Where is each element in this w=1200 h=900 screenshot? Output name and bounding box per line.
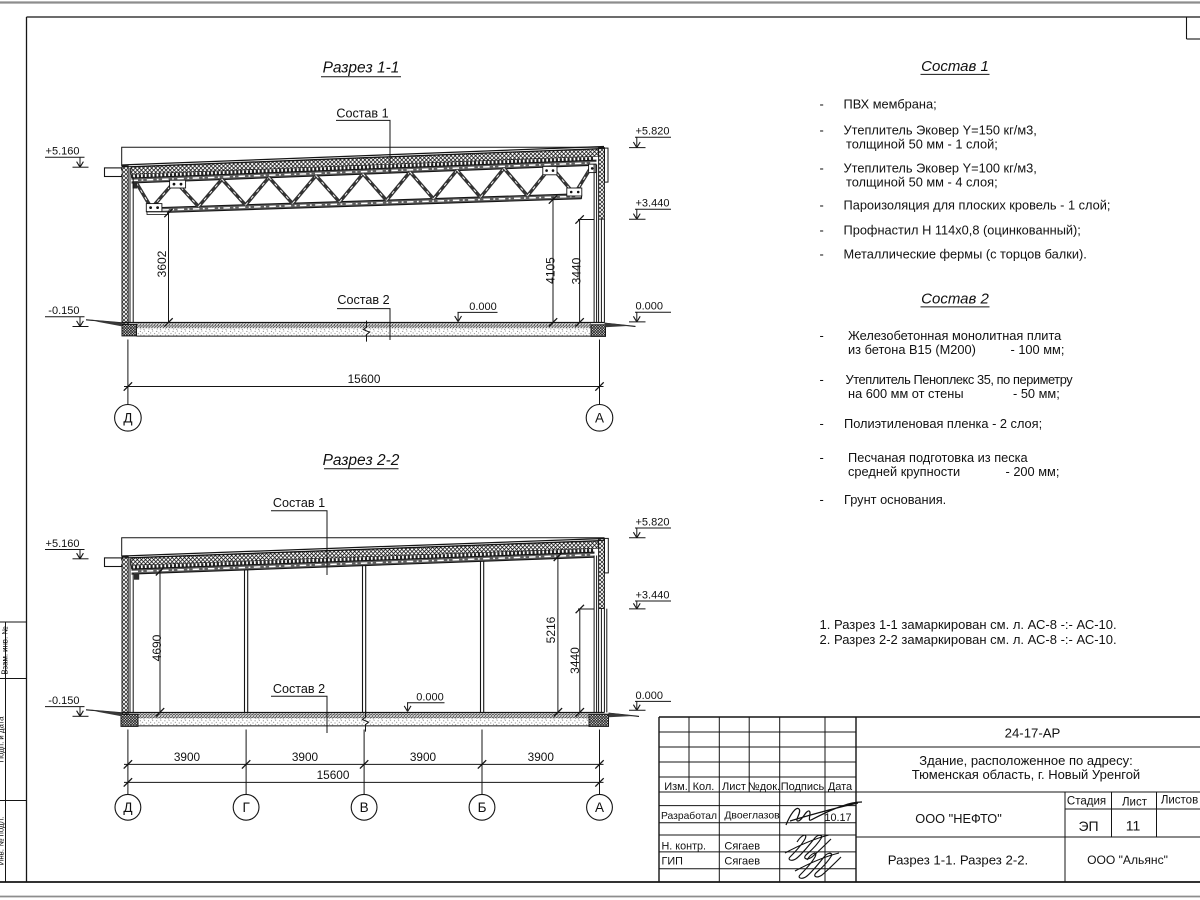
svg-text:-: - [820,197,824,212]
svg-text:Состав 1: Состав 1 [921,58,989,75]
svg-text:Песчаная подготовка из песка: Песчаная подготовка из песка [848,450,1029,465]
svg-text:Пароизоляция для плоских крове: Пароизоляция для плоских кровель - 1 сло… [844,197,1111,212]
svg-text:ПВХ мембрана;: ПВХ мембрана; [844,96,937,111]
svg-text:Здание, расположенное по адрес: Здание, расположенное по адресу: [919,753,1132,768]
svg-text:+5.820: +5.820 [636,126,670,138]
svg-text:В: В [360,800,369,815]
svg-text:ЭП: ЭП [1078,818,1098,834]
svg-text:-: - [820,222,824,237]
svg-text:11: 11 [1126,817,1141,833]
svg-text:толщиной 50 мм - 4 слоя;: толщиной 50 мм - 4 слоя; [846,174,998,189]
svg-text:Состав 1: Состав 1 [336,107,388,121]
svg-text:Листов: Листов [1161,795,1198,807]
svg-text:Разрез 2-2: Разрез 2-2 [323,452,400,469]
svg-text:Состав 2: Состав 2 [337,293,389,307]
svg-text:-0.150: -0.150 [48,305,79,317]
svg-text:+3.440: +3.440 [636,198,670,210]
svg-text:0.000: 0.000 [636,301,664,313]
svg-text:-: - [820,416,824,431]
svg-text:Металлические фермы (с торцов: Металлические фермы (с торцов балки). [844,246,1087,261]
svg-text:0.000: 0.000 [416,691,444,703]
svg-text:-: - [820,96,824,111]
svg-text:3602: 3602 [155,250,169,277]
svg-text:Стадия: Стадия [1067,796,1106,808]
svg-text:Состав 1: Состав 1 [273,496,325,510]
svg-text:- 50 мм;: - 50 мм; [1013,386,1060,401]
svg-text:-: - [820,328,824,343]
svg-text:3900: 3900 [410,750,437,764]
svg-text:Разрез 1-1: Разрез 1-1 [323,60,400,77]
svg-text:-: - [820,246,824,261]
svg-text:из бетона В15 (М200): из бетона В15 (М200) [848,342,976,357]
svg-text:+5.820: +5.820 [636,516,670,528]
svg-text:Инв. № подл.: Инв. № подл. [0,817,5,866]
svg-text:№док.: №док. [748,781,780,793]
svg-text:Д: Д [123,411,132,426]
svg-text:Состав 2: Состав 2 [921,291,989,308]
svg-text:1. Разрез 1-1 замаркирован см.: 1. Разрез 1-1 замаркирован см. л. АС-8 -… [820,617,1117,632]
svg-text:- 100 мм;: - 100 мм; [1011,342,1065,357]
svg-text:3900: 3900 [292,750,319,764]
svg-text:Сягаев: Сягаев [724,840,760,852]
svg-text:-0.150: -0.150 [48,695,79,707]
svg-text:Утеплитель Пеноплекс 35, по пе: Утеплитель Пеноплекс 35, по периметру [846,372,1074,387]
svg-text:Подпись: Подпись [781,781,825,793]
svg-text:ООО "НЕФТО": ООО "НЕФТО" [915,811,1002,826]
svg-text:-: - [820,450,824,465]
svg-text:Железобетонная монолитная пли: Железобетонная монолитная плита [848,328,1062,343]
svg-text:средней крупности: средней крупности [848,464,960,479]
svg-text:Двоеглазов: Двоеглазов [724,810,780,821]
svg-text:0.000: 0.000 [636,690,664,702]
svg-text:А: А [595,800,604,815]
svg-text:Профнастил Н 114х0,8 (оцинкова: Профнастил Н 114х0,8 (оцинкованный); [844,222,1081,237]
svg-text:+3.440: +3.440 [636,589,670,601]
svg-text:А: А [595,411,604,426]
svg-text:3440: 3440 [568,647,582,674]
svg-text:+5.160: +5.160 [46,146,80,158]
svg-text:Утеплитель Эковер Y=150 кг/м3,: Утеплитель Эковер Y=150 кг/м3, [844,122,1037,137]
svg-text:ООО "Альянс": ООО "Альянс" [1087,853,1168,867]
svg-text:-: - [820,492,824,507]
svg-text:4690: 4690 [150,634,164,661]
svg-text:на 600 мм от стены: на 600 мм от стены [848,386,964,401]
svg-text:4105: 4105 [544,257,558,284]
svg-text:Утеплитель Эковер Y=100 кг/м3,: Утеплитель Эковер Y=100 кг/м3, [844,160,1037,175]
svg-text:Разрез 1-1. Разрез 2-2.: Разрез 1-1. Разрез 2-2. [888,852,1028,867]
svg-text:Изм.: Изм. [664,781,688,793]
svg-text:5216: 5216 [544,616,558,643]
svg-text:Разработал: Разработал [661,810,717,822]
svg-text:Д: Д [123,800,132,815]
svg-text:3900: 3900 [174,750,201,764]
svg-text:Подп. и дата: Подп. и дата [0,716,5,763]
svg-text:Дата: Дата [828,781,853,793]
svg-text:Тюменская область, г. Новый Ур: Тюменская область, г. Новый Уренгой [912,767,1140,782]
svg-text:2. Разрез 2-2 замаркирован см.: 2. Разрез 2-2 замаркирован см. л. АС-8 -… [820,632,1117,647]
svg-text:Кол.: Кол. [693,781,715,793]
svg-text:Взам. инв. №: Взам. инв. № [0,626,9,674]
svg-text:Б: Б [478,800,487,815]
svg-text:Лист: Лист [1122,796,1148,808]
svg-text:+5.160: +5.160 [46,538,80,550]
svg-text:Полиэтиленовая пленка - 2 слоя: Полиэтиленовая пленка - 2 слоя; [844,416,1042,431]
svg-text:толщиной 50 мм - 1 слой;: толщиной 50 мм - 1 слой; [846,136,998,151]
svg-text:10.17: 10.17 [824,812,851,824]
svg-text:3900: 3900 [528,750,555,764]
svg-text:24-17-АР: 24-17-АР [1005,726,1061,741]
svg-text:15600: 15600 [317,768,350,782]
svg-text:- 200 мм;: - 200 мм; [1006,464,1060,479]
svg-text:-: - [820,372,824,387]
svg-text:Н. контр.: Н. контр. [662,840,707,852]
svg-text:Сягаев: Сягаев [724,855,760,867]
svg-text:15600: 15600 [348,372,381,386]
svg-text:-: - [820,122,824,137]
svg-text:-: - [820,160,824,175]
svg-text:Грунт основания.: Грунт основания. [844,492,946,507]
svg-text:0.000: 0.000 [469,301,497,313]
svg-text:Состав 2: Состав 2 [273,682,325,696]
svg-text:Лист: Лист [722,781,746,793]
svg-text:3440: 3440 [570,257,584,284]
svg-text:Г: Г [242,800,250,815]
svg-text:ГИП: ГИП [662,855,683,867]
